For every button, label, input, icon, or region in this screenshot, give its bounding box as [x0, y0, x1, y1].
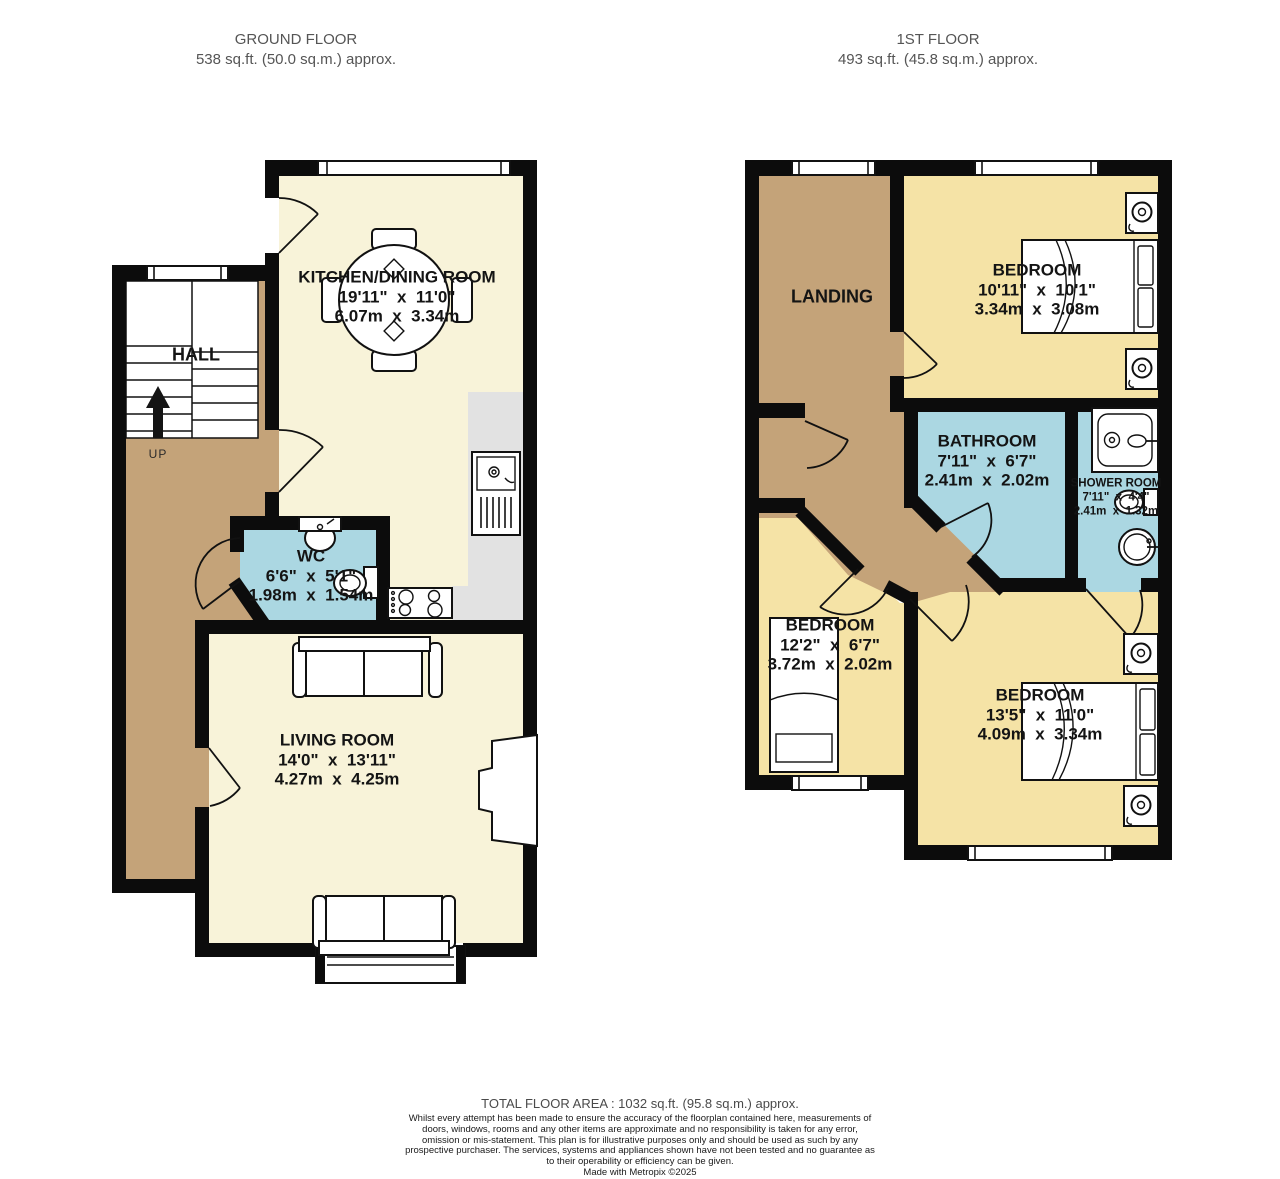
kitchen-dining-room-label: KITCHEN/DINING ROOM 19'11" x 11'0" 6.07m… — [298, 267, 495, 326]
hob-icon — [388, 588, 452, 618]
wc-label: WC 6'6" x 5'1" 1.98m x 1.54m — [249, 546, 374, 605]
room-dims-imperial: 7'11" x 6'7" — [925, 451, 1050, 471]
total-floor-area: TOTAL FLOOR AREA : 1032 sq.ft. (95.8 sq.… — [481, 1096, 799, 1111]
shower-cubicle-icon — [1092, 408, 1158, 472]
disclaimer-text: Whilst every attempt has been made to en… — [403, 1114, 877, 1168]
bedroom1-label: BEDROOM 10'11" x 10'1" 3.34m x 3.08m — [975, 260, 1100, 319]
bedside-table-icon — [1124, 634, 1158, 674]
room-dims-metric: 1.98m x 1.54m — [249, 586, 374, 606]
room-dims-metric: 3.72m x 2.02m — [768, 655, 893, 675]
bedside-table-icon — [1126, 193, 1158, 233]
room-name: BEDROOM — [978, 685, 1103, 705]
first-floor-title: 1ST FLOOR 493 sq.ft. (45.8 sq.m.) approx… — [838, 30, 1038, 69]
room-dims-metric: 4.27m x 4.25m — [275, 770, 400, 790]
bedroom3-label: BEDROOM 13'5" x 11'0" 4.09m x 3.34m — [978, 685, 1103, 744]
room-name: BEDROOM — [768, 615, 893, 635]
bathroom-label: BATHROOM 7'11" x 6'7" 2.41m x 2.02m — [925, 431, 1050, 490]
metropix-credit: Made with Metropix ©2025 — [403, 1168, 877, 1179]
room-dims-metric: 3.34m x 3.08m — [975, 300, 1100, 320]
kitchen-sink-unit-icon — [472, 452, 520, 535]
kitchen-window — [318, 161, 510, 175]
room-dims-metric: 4.09m x 3.34m — [978, 725, 1103, 745]
landing-label: LANDING — [791, 287, 873, 308]
room-dims-metric: 6.07m x 3.34m — [298, 307, 495, 327]
bedside-table-icon — [1124, 786, 1158, 826]
room-dims-imperial: 7'11" x 4'4" — [1071, 491, 1162, 505]
floor-area: 493 sq.ft. (45.8 sq.m.) approx. — [838, 50, 1038, 70]
bedroom3-window — [968, 846, 1112, 860]
room-name: BEDROOM — [975, 260, 1100, 280]
room-name: SHOWER ROOM — [1071, 477, 1162, 491]
sofa-icon — [313, 896, 455, 955]
room-dims-imperial: 14'0" x 13'11" — [275, 750, 400, 770]
room-dims-imperial: 6'6" x 5'1" — [249, 566, 374, 586]
landing-window — [792, 161, 875, 175]
ground-floor-title: GROUND FLOOR 538 sq.ft. (50.0 sq.m.) app… — [196, 30, 396, 69]
footer-disclaimer-block: Whilst every attempt has been made to en… — [403, 1114, 877, 1179]
room-dims-metric: 2.41m x 1.32m — [1071, 505, 1162, 519]
room-name: KITCHEN/DINING ROOM — [298, 267, 495, 287]
bedroom1-window — [975, 161, 1098, 175]
room-dims-imperial: 12'2" x 6'7" — [768, 635, 893, 655]
hall-label: HALL — [172, 345, 220, 366]
room-name: LANDING — [791, 287, 873, 308]
shower-room-label: SHOWER ROOM 7'11" x 4'4" 2.41m x 1.32m — [1071, 477, 1162, 518]
hall-window — [147, 266, 228, 280]
bedside-table-icon — [1126, 349, 1158, 389]
room-name: WC — [249, 546, 374, 566]
floor-area: 538 sq.ft. (50.0 sq.m.) approx. — [196, 50, 396, 70]
room-dims-metric: 2.41m x 2.02m — [925, 471, 1050, 491]
floorplan-graphic — [0, 0, 1280, 1175]
floor-name: GROUND FLOOR — [196, 30, 396, 50]
room-name: LIVING ROOM — [275, 730, 400, 750]
living-room-label: LIVING ROOM 14'0" x 13'11" 4.27m x 4.25m — [275, 730, 400, 789]
bedroom2-window — [792, 776, 868, 790]
room-name: HALL — [172, 345, 220, 366]
room-dims-imperial: 10'11" x 10'1" — [975, 280, 1100, 300]
room-dims-imperial: 19'11" x 11'0" — [298, 287, 495, 307]
sofa-icon — [293, 637, 442, 697]
room-dims-imperial: 13'5" x 11'0" — [978, 705, 1103, 725]
room-name: BATHROOM — [925, 431, 1050, 451]
bedroom2-label: BEDROOM 12'2" x 6'7" 3.72m x 2.02m — [768, 615, 893, 674]
stairs-up-label: UP — [149, 447, 168, 461]
floor-name: 1ST FLOOR — [838, 30, 1038, 50]
